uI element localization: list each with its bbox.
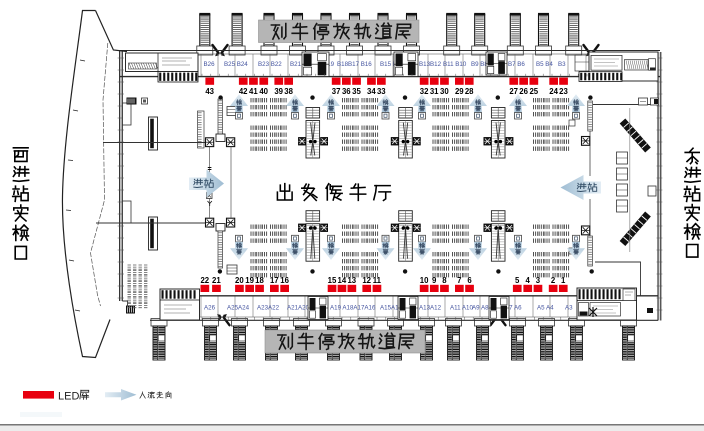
svg-text:1: 1	[561, 276, 566, 285]
svg-text:A11 A10: A11 A10	[450, 305, 473, 312]
svg-text:39: 39	[274, 87, 283, 96]
svg-text:26: 26	[519, 87, 528, 96]
svg-text:3: 3	[536, 276, 541, 285]
svg-text:40: 40	[259, 87, 268, 96]
svg-text:38: 38	[284, 87, 293, 96]
svg-text:41: 41	[249, 87, 258, 96]
svg-text:31: 31	[430, 87, 439, 96]
svg-text:30: 30	[440, 87, 449, 96]
svg-text:B3: B3	[558, 61, 566, 68]
svg-text:21: 21	[212, 276, 221, 285]
svg-text:43: 43	[205, 87, 214, 96]
svg-text:A21A20: A21A20	[287, 305, 310, 312]
svg-text:A23A22: A23A22	[257, 305, 280, 312]
svg-text:20: 20	[235, 276, 244, 285]
svg-text:35: 35	[352, 87, 361, 96]
svg-text:A3: A3	[565, 305, 573, 312]
svg-text:28: 28	[465, 87, 474, 96]
svg-text:25: 25	[529, 87, 538, 96]
svg-text:33: 33	[377, 87, 386, 96]
svg-text:A5 A4: A5 A4	[537, 305, 554, 312]
svg-text:5: 5	[515, 276, 520, 285]
svg-text:29: 29	[455, 87, 464, 96]
svg-text:A19 A18A17A16: A19 A18A17A16	[330, 305, 376, 312]
svg-text:B7 B6: B7 B6	[508, 61, 525, 68]
svg-text:27: 27	[509, 87, 518, 96]
svg-text:32: 32	[420, 87, 429, 96]
svg-text:A13A12: A13A12	[419, 305, 442, 312]
svg-text:B18B17 B16: B18B17 B16	[337, 61, 372, 68]
svg-text:B25 B24: B25 B24	[224, 61, 248, 68]
svg-text:23: 23	[559, 87, 568, 96]
svg-text:34: 34	[367, 87, 376, 96]
svg-text:37: 37	[332, 87, 341, 96]
svg-text:36: 36	[342, 87, 351, 96]
svg-text:A9 A8: A9 A8	[472, 305, 489, 312]
svg-text:4: 4	[526, 276, 531, 285]
svg-text:42: 42	[239, 87, 248, 96]
svg-text:15: 15	[328, 276, 337, 285]
svg-text:A26: A26	[204, 305, 216, 312]
svg-text:B23 B22: B23 B22	[258, 61, 282, 68]
svg-text:B5 B4: B5 B4	[536, 61, 553, 68]
svg-text:LED: LED	[58, 391, 79, 403]
svg-text:B13B12: B13B12	[419, 61, 442, 68]
svg-text:B26: B26	[204, 61, 216, 68]
svg-text:B11 B10: B11 B10	[443, 61, 467, 68]
svg-text:10: 10	[420, 276, 429, 285]
svg-text:A25A24: A25A24	[227, 305, 250, 312]
svg-text:24: 24	[549, 87, 558, 96]
svg-text:22: 22	[200, 276, 209, 285]
